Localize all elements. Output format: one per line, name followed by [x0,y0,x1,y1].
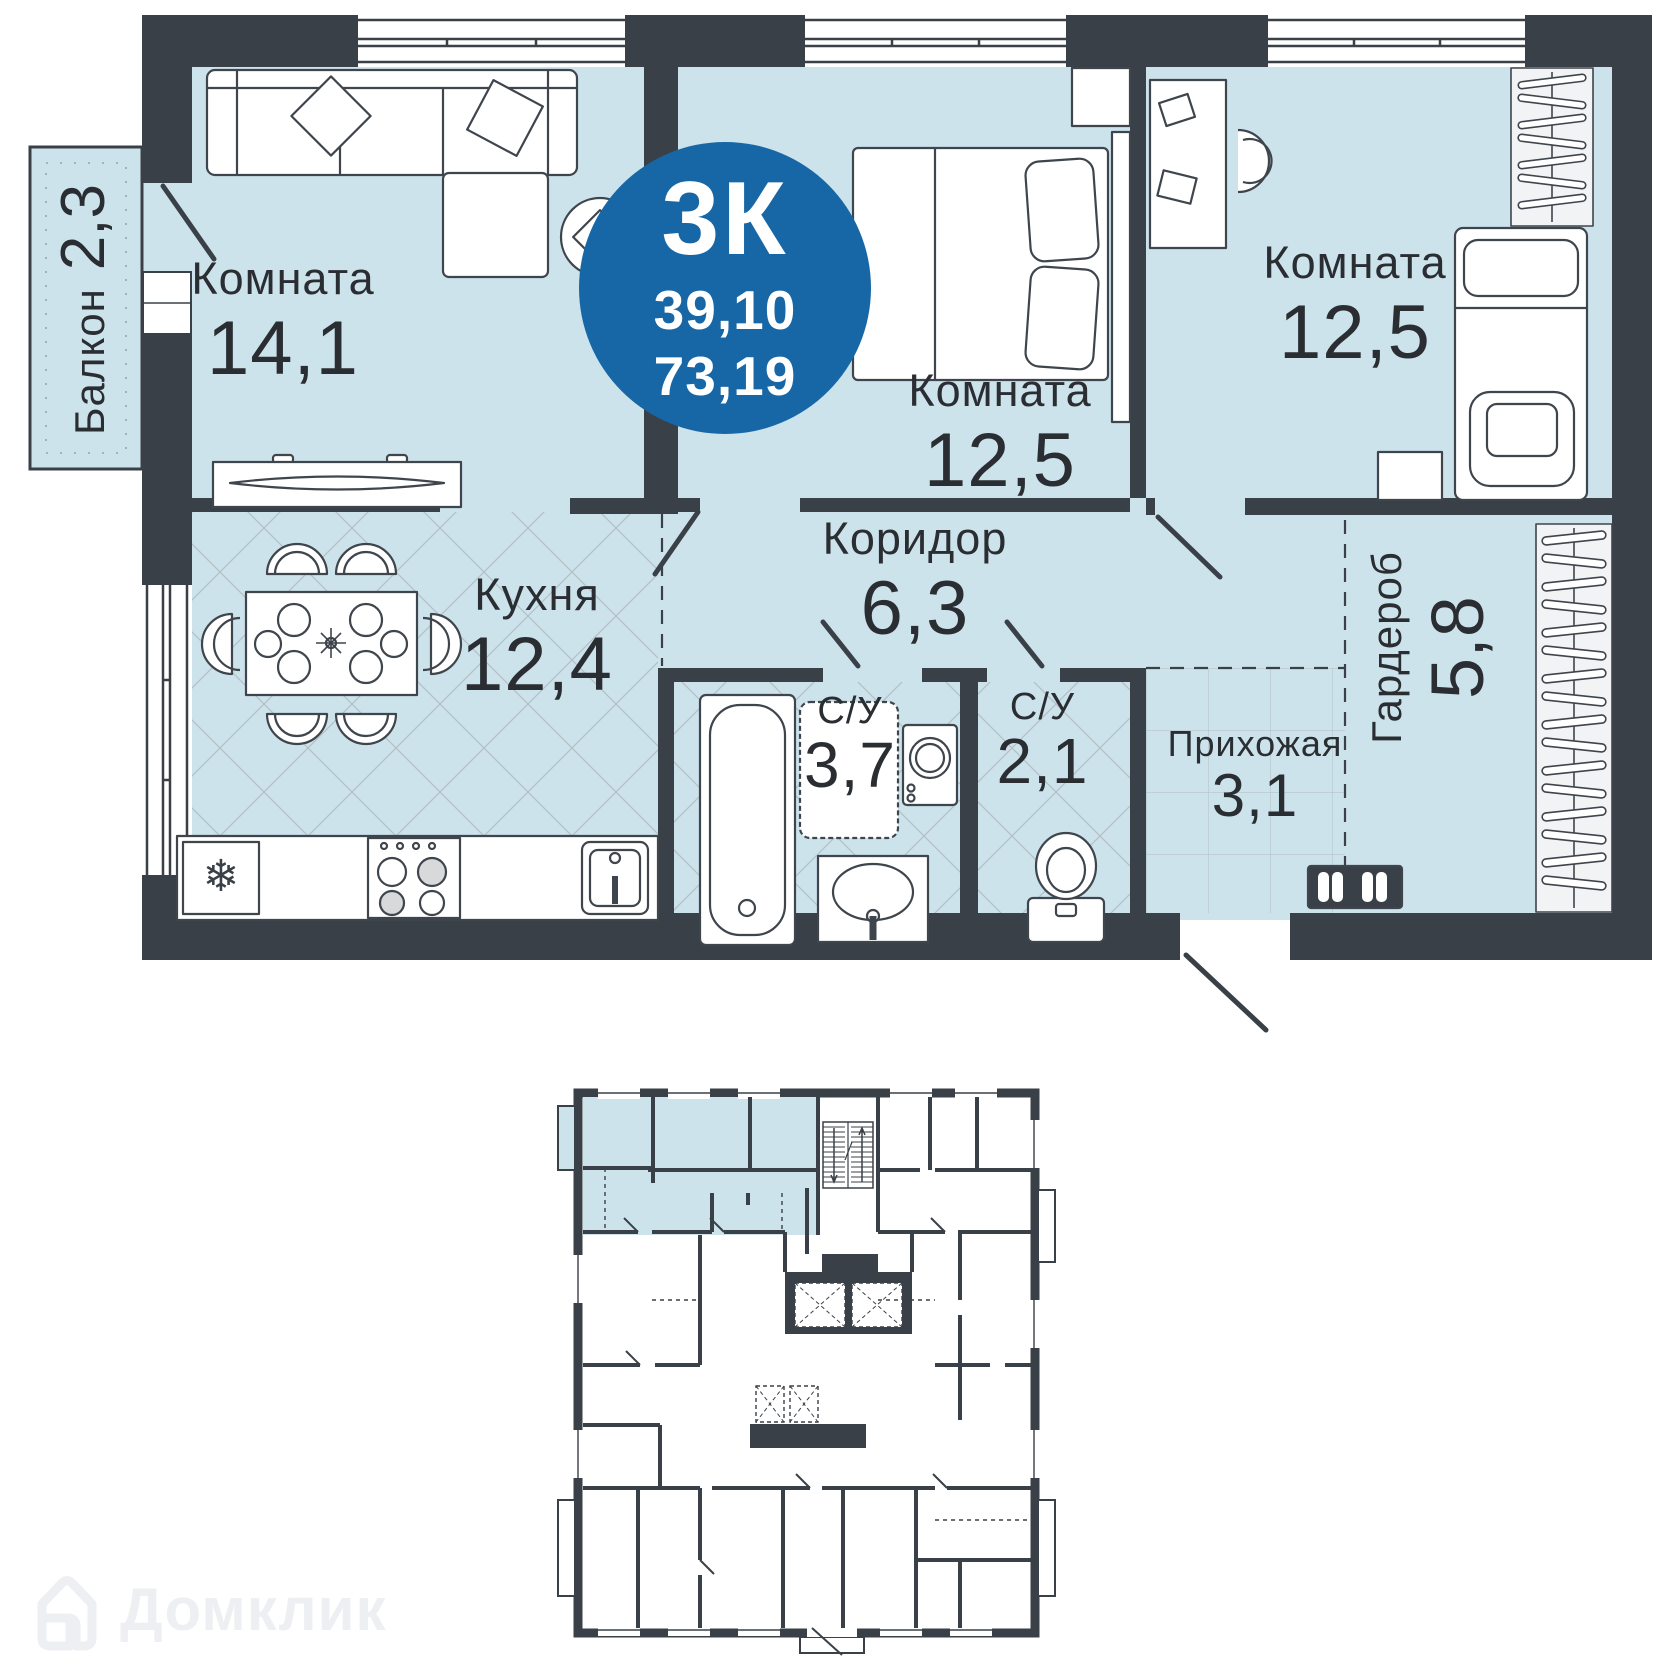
room-label-bedroom-right: Комната 12,5 [1200,240,1510,371]
room-label-bathroom: С/У 3,7 [786,692,914,798]
room-name: Комната [118,256,448,302]
room-label-hallway: Прихожая 3,1 [1146,726,1364,826]
living-area-value: 39,10 [654,277,797,343]
double-bed-icon [853,148,1108,380]
apartment-type: 3К [661,167,788,271]
room-area: 14,1 [118,310,448,388]
room-name: С/У [975,688,1110,727]
room-name: Комната [845,368,1155,414]
bathtub-icon [700,695,795,945]
floorplan-page: Балкон 2,3 Комната 14,1 Комната 12,5 Ком… [0,0,1667,1667]
window-icon [358,15,625,67]
tv-console-icon [213,455,461,507]
room-label-living: Комната 14,1 [118,256,448,387]
room-area: 2,3 [49,183,120,269]
entrance-door-icon [1186,955,1266,1030]
room-area: 5,8 [1415,551,1500,744]
room-name: С/У [786,692,914,731]
domclick-house-icon [30,1566,104,1652]
stairs-icon [823,1122,873,1188]
room-name: Комната [1200,240,1510,286]
total-area-value: 73,19 [654,343,797,409]
shoe-rack-icon [1308,866,1402,908]
room-area: 12,5 [1200,294,1510,372]
room-label-bedroom-middle: Комната 12,5 [845,368,1155,499]
bath-sink-icon [818,856,928,942]
room-area: 6,3 [770,570,1060,648]
room-area: 3,1 [1146,765,1364,826]
room-name: Прихожая [1146,726,1364,763]
window-icon [805,15,1066,67]
window-icon [142,585,192,875]
watermark-brand: Домклик [120,1575,387,1644]
room-label-wc: С/У 2,1 [975,688,1110,794]
watermark: Домклик [30,1566,387,1652]
room-label-kitchen: Кухня 12,4 [412,572,662,703]
room-label-wardrobe: Гардероб 5,8 [1338,492,1524,802]
room-name: Коридор [770,516,1060,562]
room-name: Балкон [67,288,115,435]
building-floorplate [558,1087,1055,1655]
apartment-info-badge: 3К 39,10 73,19 [579,142,871,434]
window-icon [1268,15,1525,67]
room-name: Кухня [412,572,662,618]
room-label-corridor: Коридор 6,3 [770,516,1060,647]
hanger-rack-small-icon [1511,68,1593,226]
stove-icon [368,838,460,918]
room-name: Гардероб [1363,551,1411,744]
snowflake-icon: ❄ [192,848,250,906]
kitchen-sink-icon [582,842,648,914]
room-area: 12,4 [412,626,662,704]
room-area: 2,1 [975,729,1110,794]
room-area: 12,5 [845,422,1155,500]
hanger-rack-large-icon [1536,524,1612,912]
room-area: 3,7 [786,733,914,798]
cabinet-icon [1072,68,1130,126]
